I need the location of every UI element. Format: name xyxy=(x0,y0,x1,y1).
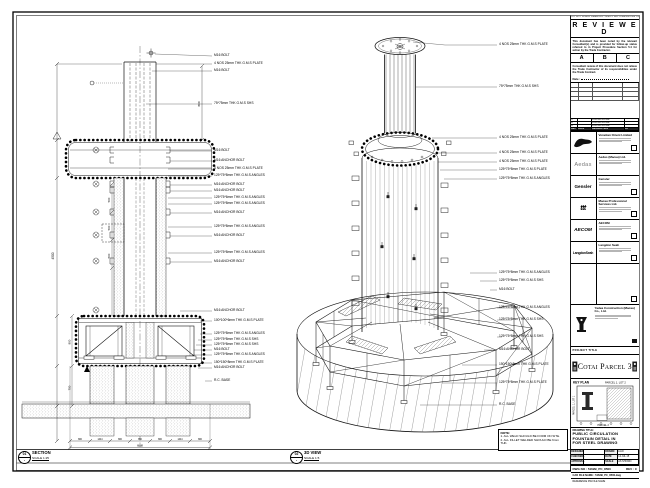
key-plan-parcel-bottom: PARCEL 2 xyxy=(597,424,609,427)
consultant-row-aecom: AECOM AECOM xyxy=(571,220,640,242)
key-plan-parcel-left: PARCEL 1, LOT 1 xyxy=(572,395,575,415)
annotation-label: 125*75*8mm THK G.M.S PLATE xyxy=(499,381,547,384)
annotation-label: 4 NOS 25mm THK G.M.S PLATE xyxy=(499,43,548,46)
stamp-option-a: A xyxy=(571,54,594,62)
svg-text:850: 850 xyxy=(138,439,143,441)
annotation-label: 125*75*8mm THK G.M.S SHS xyxy=(214,338,258,341)
svg-text:800: 800 xyxy=(198,439,203,441)
svg-text:800: 800 xyxy=(197,101,201,106)
svg-text:1444: 1444 xyxy=(97,439,103,441)
annotation-label: M16 BOLT xyxy=(214,149,230,152)
dwg-rev: REV : C xyxy=(626,466,637,472)
svg-text:1444: 1444 xyxy=(177,439,183,441)
section-view-scale: SCALE 1:25 xyxy=(32,457,49,461)
annotation-label: M16 BOLT xyxy=(499,288,515,291)
key-plan-label: KEY PLAN xyxy=(573,381,590,385)
stamp-date-field xyxy=(581,76,629,80)
view-sheet-ref: - xyxy=(19,458,30,464)
contractor-box: Yadea Construction (Macau) Co., Ltd. xyxy=(571,305,640,347)
annotation-label: 125*75*8mm THK G.M.S ANGLES xyxy=(499,271,550,274)
annotation-label: 125*75*8mm THK G.M.S ANGLES xyxy=(499,306,550,309)
consultant-name: Venetian Orient Limited xyxy=(599,134,638,137)
section-view-title: SECTION xyxy=(32,451,51,455)
svg-text:4500: 4500 xyxy=(51,252,55,259)
stamp-option-c: C xyxy=(617,54,639,62)
general-notes: NOTE: 1. ALL WELD SHOULD BE FORM ON SITE… xyxy=(498,429,568,451)
view-sheet-ref: - xyxy=(291,458,302,464)
checkbox xyxy=(631,255,637,261)
reference-row: REFERENCE DW FILE NAME xyxy=(571,479,640,485)
annotation-label: 125*75*8mm THK G.M.S ANGLES xyxy=(214,332,265,335)
ttt-logo-icon: ttt xyxy=(571,198,597,219)
langdon-seah-logo-icon: LangdonSeah xyxy=(571,242,597,263)
annotation-label: 75*75mm THK G.M.S SHS xyxy=(214,102,254,105)
annotation-label: 125*75*8mm THK G.M.S ANGLES xyxy=(214,174,265,177)
annotation-label: 125*75*8mm THK G.M.S SHS xyxy=(499,279,543,282)
annotation-label: M16 ANCHOR BOLT xyxy=(214,366,245,369)
consultant-row-empty xyxy=(571,264,640,305)
empty-logo-cell xyxy=(571,264,597,304)
iso-view-title: 3D VIEW xyxy=(304,451,321,455)
checkbox xyxy=(631,233,637,239)
project-title-band: Cotai Parcel 3 xyxy=(571,355,640,379)
stamp-paragraph: This document has been noted by the rele… xyxy=(571,38,640,53)
svg-text:500: 500 xyxy=(107,197,111,202)
consultant-row-gensler: Gensler Gensler xyxy=(571,176,640,198)
annotation-label: R.C. BASE xyxy=(499,403,515,406)
contractor-name: Yadea Construction (Macau) Co., Ltd. xyxy=(595,307,638,314)
svg-text:800: 800 xyxy=(78,439,83,441)
section-view-linework xyxy=(22,46,250,450)
key-plan-parcel-top: PARCEL 1, LOT 2 xyxy=(605,381,626,385)
project-name: Cotai Parcel 3 xyxy=(578,362,632,371)
annotation-label: 4 NOS 25mm THK G.M.S PLATE xyxy=(214,62,263,65)
aecom-logo-icon: AECOM xyxy=(571,220,597,241)
title-block: DO NOT SCALE DRAWING. VERIFY ALL DIMENSI… xyxy=(571,16,640,471)
consultant-name: Gensler xyxy=(599,178,638,181)
annotation-label: 150*150*8mm THK G.M.S PLATE xyxy=(499,363,549,366)
consultant-name: Macau Professional Services Ltd. xyxy=(599,200,638,206)
consultant-name: AECOM xyxy=(599,222,638,225)
svg-text:800: 800 xyxy=(68,339,72,344)
annotation-label: M16 ANCHOR BOLT xyxy=(214,260,245,263)
annotation-label: M16 ANCHOR BOLT xyxy=(214,211,245,214)
review-stamp: DO NOT SCALE DRAWING. VERIFY ALL DIMENSI… xyxy=(571,16,640,119)
stamp-grid xyxy=(571,82,640,101)
consultant-row-langdon-seah: LangdonSeah Langdon Seah xyxy=(571,242,640,264)
iso-view-marker: 02 - xyxy=(290,451,303,464)
consultant-row-mps: ttt Macau Professional Services Ltd. xyxy=(571,198,640,220)
aedas-logo-icon: Aedas xyxy=(571,154,597,175)
annotation-label: M16 ANCHOR BOLT xyxy=(214,159,245,162)
annotation-label: 125*75*6mm THK G.M.S ANGLES xyxy=(214,196,265,199)
annotation-label: M16 ANCHOR BOLT xyxy=(214,189,245,192)
dwg-number-row: DWG NO : 5162B_PC_8500 REV : C xyxy=(571,466,640,473)
annotation-label: 125*75*8mm THK G.M.S SHS xyxy=(214,343,258,346)
contractor-logo-icon xyxy=(571,305,593,346)
annotation-label: 125*75*8mm THK G.M.S ANGLES xyxy=(214,251,265,254)
checkbox xyxy=(631,189,637,195)
section-view-marker: 01 - xyxy=(18,451,31,464)
consultant-row-venetian: Venetian Orient Limited xyxy=(571,132,640,154)
checkbox xyxy=(631,211,637,217)
stamp-paragraph: Consultant review of this document does … xyxy=(571,63,640,75)
emblem-icon xyxy=(632,359,638,374)
stamp-date-line: Date : xyxy=(571,75,640,82)
checkbox xyxy=(631,145,637,151)
key-plan: KEY PLAN PARCEL 1, LOT 2 PARCEL 1, LOT 1… xyxy=(571,379,640,428)
annotation-label: 100*100*6mm THK G.M.S PLATE xyxy=(214,319,264,322)
svg-text:800: 800 xyxy=(118,439,123,441)
title-block-fields: DESIGNED DRAWNLIAO CHECKED- DATE14.JUL.1… xyxy=(571,450,640,466)
annotation-label: 125*75*8mm THK G.M.S SHS xyxy=(499,335,543,338)
annotation-label: 4 NOS 25mm THK G.M.S PLATE xyxy=(214,167,263,170)
note-line: 2. ALL FILLET WELDED SHOULD BE 6mm THK. xyxy=(501,438,559,446)
stamp-option-b: B xyxy=(594,54,617,62)
sheet-linework: 4500 800 500 500 500 800 750 800 1444 80… xyxy=(0,0,650,488)
svg-text:500: 500 xyxy=(107,253,111,258)
venetian-logo-icon xyxy=(571,132,597,153)
consultant-name: Langdon Seah xyxy=(599,244,638,247)
drawing-title-box: DRAWING TITLE: PUBLIC CIRCULATION FOUNTA… xyxy=(571,428,640,450)
annotation-label: 125*75*8mm THK G.M.S ANGLES xyxy=(214,202,265,205)
annotation-label: M16 ANCHOR BOLT xyxy=(214,309,245,312)
annotation-label: M16 BOLT xyxy=(214,348,230,351)
iso-view-scale: SCALE 1:5 xyxy=(304,457,319,461)
dwg-number: DWG NO : 5162B_PC_8500 xyxy=(573,466,611,472)
annotation-label: 75*75mm THK G.M.S SHS xyxy=(499,85,539,88)
annotation-label: 125*75*8mm THK G.M.S ANGLES xyxy=(214,225,265,228)
annotation-label: 125*75*8mm THK G.M.S ANGLES xyxy=(499,177,550,180)
contractor-stamp-square xyxy=(632,339,637,344)
checkbox xyxy=(631,296,637,302)
project-title-label: PROJECT TITLE xyxy=(571,347,640,355)
annotation-label: 125*75*8mm THK G.M.S SHS xyxy=(499,318,543,321)
annotation-label: M16 BOLT xyxy=(214,69,230,72)
annotation-label: 4 NOS 25mm THK G.M.S PLATE xyxy=(499,160,548,163)
annotation-label: 125*75*8mm THK G.M.S ANGLES xyxy=(214,353,265,356)
revision-table: CFOR APPROVAL BFOR APPROVAL AFOR APPROVA… xyxy=(571,119,640,133)
annotation-label: M16 ANCHOR BOLT xyxy=(214,183,245,186)
stamp-title: R E V I E W E D xyxy=(571,20,640,38)
consultant-name: Aedas (Macau) Ltd. xyxy=(599,156,638,159)
annotation-label: 125*75*8mm THK G.M.S PLATE xyxy=(499,168,547,171)
annotation-label: M16 BOLT xyxy=(214,54,230,57)
svg-text:6888: 6888 xyxy=(137,443,143,447)
annotation-label: 4 NOS 25mm THK G.M.S PLATE xyxy=(499,151,548,154)
annotation-label: M16 ANCHOR BOLT xyxy=(214,234,245,237)
gensler-logo-icon: Gensler xyxy=(571,176,597,197)
consultant-row-aedas: Aedas Aedas (Macau) Ltd. xyxy=(571,154,640,176)
annotation-label: M16 ANCHOR BOLT xyxy=(499,348,530,351)
annotation-label: R.C. BASE xyxy=(214,379,230,382)
annotation-label: 4 NOS 25mm THK G.M.S PLATE xyxy=(499,136,548,139)
annotation-label: 150*150*8mm THK G.M.S PLATE xyxy=(214,361,264,364)
stamp-options: A B C xyxy=(571,53,640,63)
drawing-title-line: FOR STEEL DRAWING xyxy=(573,441,638,446)
svg-text:500: 500 xyxy=(107,225,111,230)
drawing-sheet: 4500 800 500 500 500 800 750 800 1444 80… xyxy=(0,0,650,488)
svg-text:800: 800 xyxy=(158,439,163,441)
svg-text:750: 750 xyxy=(68,385,72,390)
stamp-date-label: Date : xyxy=(573,77,581,81)
